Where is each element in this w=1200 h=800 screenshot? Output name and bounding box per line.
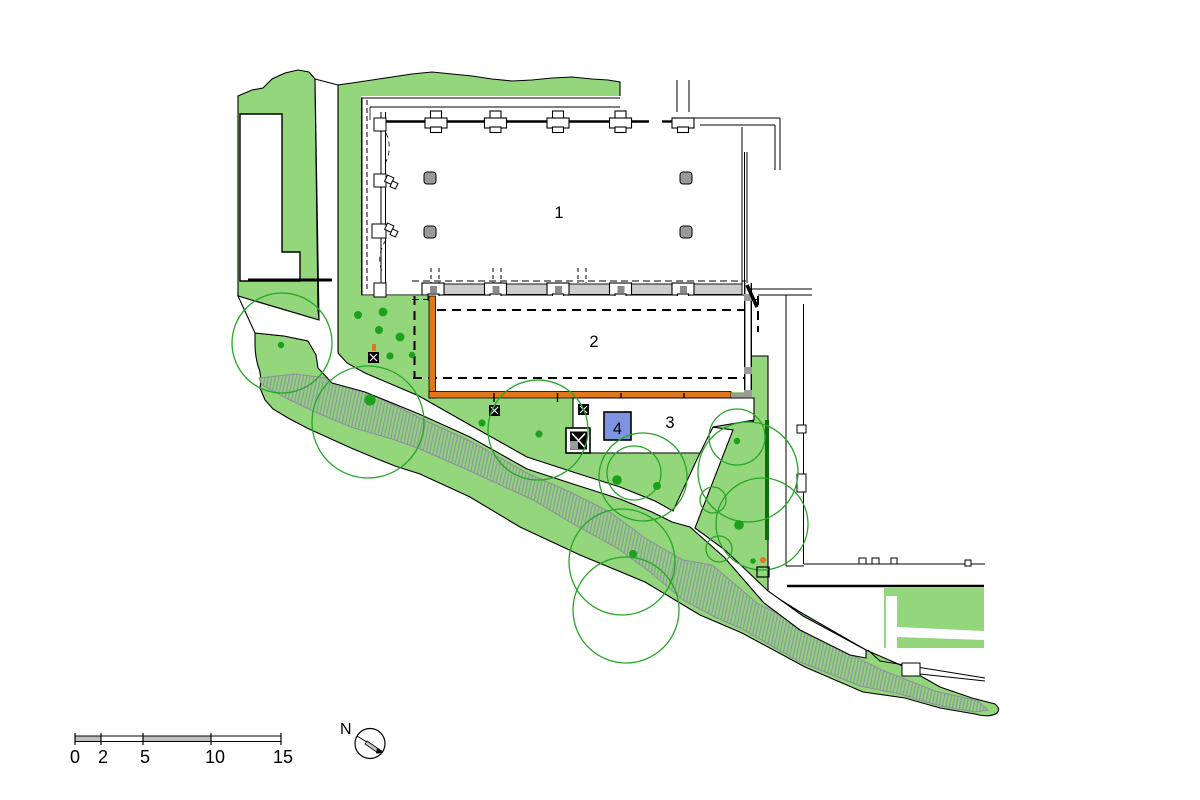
svg-text:1: 1: [554, 204, 563, 222]
svg-text:0: 0: [70, 747, 80, 767]
svg-text:5: 5: [140, 747, 150, 767]
svg-text:4: 4: [613, 420, 622, 438]
svg-text:15: 15: [273, 747, 293, 767]
svg-text:2: 2: [98, 747, 108, 767]
svg-text:10: 10: [205, 747, 225, 767]
svg-text:N: N: [340, 721, 352, 738]
svg-text:2: 2: [589, 333, 598, 351]
svg-text:3: 3: [665, 414, 674, 432]
